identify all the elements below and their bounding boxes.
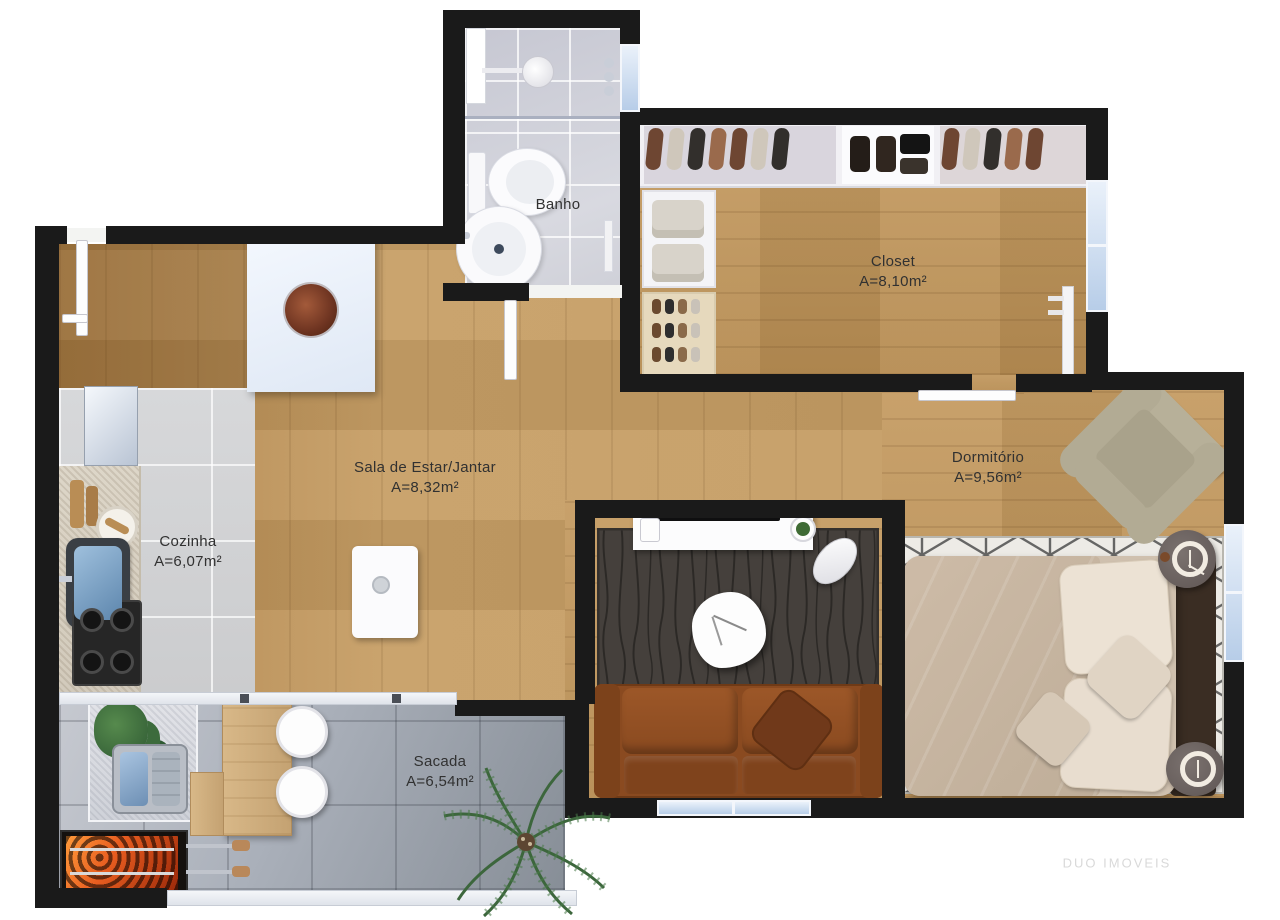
shower-glass-partition [465,116,622,119]
shoe [652,323,661,338]
room-label-cozinha: Cozinha A=6,07m² [154,532,222,573]
clothes-item [750,127,769,170]
room-label-banho: Banho [536,195,581,215]
skewer-handle [232,840,250,851]
cutting-board [70,480,84,528]
bar-stool [276,706,328,758]
shoe [678,299,687,314]
bathroom-door-leaf [504,300,517,380]
shower-arm [482,68,526,73]
room-name: Dormitório [952,448,1024,468]
balcony-drainboard [152,752,180,806]
folded-towels [652,200,704,238]
wall [575,500,595,704]
floor-plan: Banho Closet A=8,10m² Sala de Estar/Jant… [0,0,1280,920]
shoe-rack [642,292,716,376]
grill-skewer [70,848,174,851]
clothes-item [962,127,981,170]
room-label-sacada: Sacada A=6,54m² [406,752,474,793]
shoe [691,299,700,314]
clothes-item [729,127,748,170]
wall [443,10,640,28]
room-area: A=6,07m² [154,552,222,572]
nightstand [1166,742,1224,796]
burner [80,650,104,674]
shower-head [522,56,554,88]
skewer-handle-rod [186,844,236,848]
sofa-armrest [860,684,884,798]
clothes-item [708,127,727,170]
shoe [652,347,661,362]
wall [1016,374,1092,392]
clothes-item [666,127,685,170]
console-figurine [640,518,660,542]
bathroom-threshold [529,285,622,298]
valet-hook [1048,310,1064,315]
clothes-item [771,127,790,170]
shower-control [604,72,614,82]
valet-hook [1048,296,1064,301]
clothes-item [645,127,664,170]
folded-towels [652,244,704,282]
closet-box-shelf [642,190,716,288]
sink-drain [494,244,504,254]
wall [575,500,905,518]
wall [35,226,59,908]
shower-control [604,58,614,68]
room-name: Banho [536,195,581,215]
clothes-item [983,127,1002,170]
shoe [691,323,700,338]
room-area: A=8,32m² [354,478,496,498]
bedroom-door-leaf [918,390,1016,401]
wall [882,500,905,802]
grill-embers [66,836,178,890]
closet-hanging-clothes [644,126,836,184]
burner [110,650,134,674]
burner [80,608,104,632]
room-name: Sala de Estar/Jantar [354,458,496,478]
balcony-sink-basin [120,752,148,806]
shower-niche [466,28,486,104]
toilet-tank [468,152,486,214]
slider-frame-mark [240,694,249,703]
window-sash-bar [732,800,735,816]
console-plant [796,522,810,536]
wall [620,108,1092,125]
shower-control [604,86,614,96]
refrigerator [84,386,138,466]
sofa-seat-cushion [624,756,738,794]
entry-door-handle [62,314,88,323]
nightstand [1158,530,1216,588]
slider-frame-mark [392,694,401,703]
clothes-item [1025,127,1044,170]
side-table-decor [372,576,390,594]
watermark: DUO IMOVEIS [1063,856,1172,871]
nightstand-decor [1160,552,1170,562]
skewer-handle-rod [186,870,236,874]
wall [106,226,465,244]
burner [110,608,134,632]
clothes-item [687,127,706,170]
handbag [876,136,896,172]
travel-bag [900,158,928,174]
sofa-back-cushion [622,688,738,754]
clock-spoke [1197,760,1199,778]
table-centerpiece [285,284,337,336]
room-name: Cozinha [154,532,222,552]
skewer-handle [232,866,250,877]
wall [1086,372,1244,390]
room-area: A=9,56m² [952,468,1024,488]
shoe [691,347,700,362]
room-area: A=8,10m² [859,272,927,292]
closet-bag-shelf [842,126,934,184]
window-sash-bar [1086,244,1108,247]
closet-hanging-clothes [940,126,1086,184]
towel-rail [604,220,613,272]
bar-table-foot [190,772,224,836]
clothes-item [941,127,960,170]
shoe [665,299,674,314]
wall [455,700,589,716]
room-label-closet: Closet A=8,10m² [859,252,927,293]
shoe [678,323,687,338]
bar-stool [276,766,328,818]
clothes-item [1004,127,1023,170]
room-name: Sacada [406,752,474,772]
room-name: Closet [859,252,927,272]
travel-bag [900,134,930,154]
room-label-dormitorio: Dormitório A=9,56m² [952,448,1024,489]
wall [443,10,465,244]
handbag [850,136,870,172]
wall [443,283,529,301]
shoe [665,323,674,338]
grill-skewer [70,872,174,875]
shoe [665,347,674,362]
shoe [678,347,687,362]
shoe [652,299,661,314]
wall [35,226,67,244]
window [620,44,640,112]
window-sash-bar [1224,591,1244,594]
room-area: A=6,54m² [406,772,474,792]
wall [35,888,167,908]
room-label-sala: Sala de Estar/Jantar A=8,32m² [354,458,496,499]
